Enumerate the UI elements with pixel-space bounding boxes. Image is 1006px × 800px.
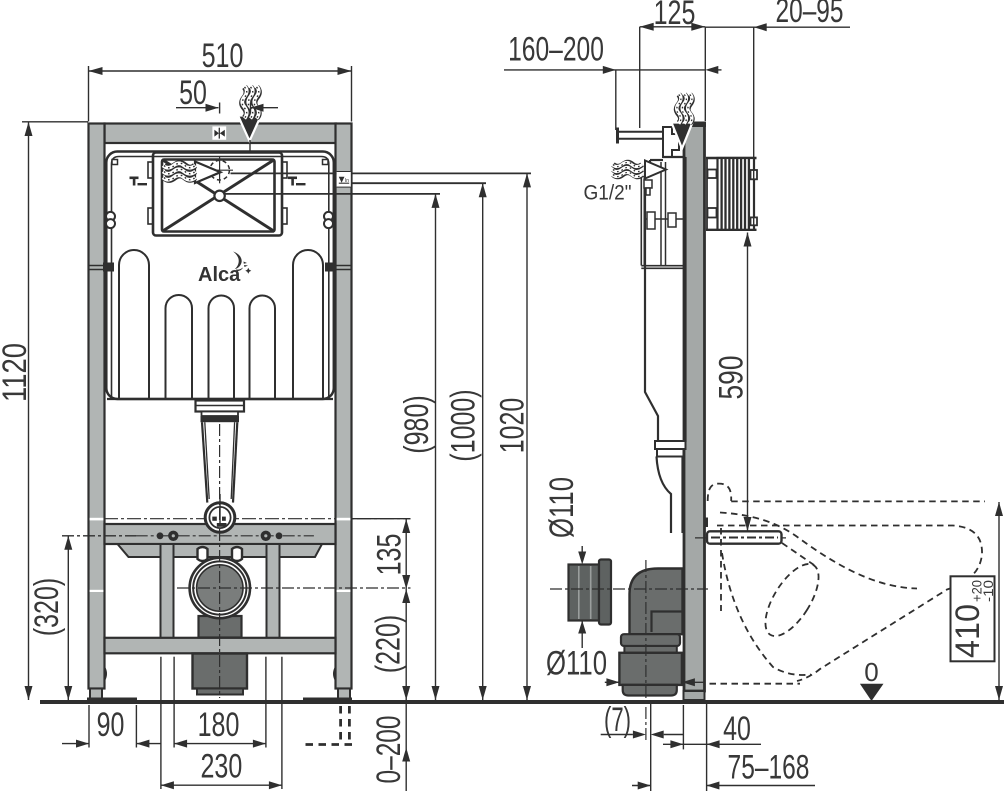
svg-text:(320): (320) [28, 578, 66, 636]
svg-text:(7): (7) [604, 701, 631, 739]
svg-text:410: 410 [949, 604, 987, 658]
svg-text:40: 40 [723, 710, 751, 748]
svg-text:230: 230 [201, 748, 243, 786]
svg-text:Ø110: Ø110 [546, 645, 607, 683]
svg-text:(220): (220) [370, 615, 408, 673]
svg-text:90: 90 [97, 706, 125, 744]
svg-text:135: 135 [371, 534, 409, 576]
svg-text:Ø110: Ø110 [543, 477, 581, 538]
svg-text:20–95: 20–95 [776, 0, 844, 30]
svg-text:0–200: 0–200 [370, 716, 408, 784]
svg-text:75–168: 75–168 [728, 749, 810, 787]
svg-text:510: 510 [202, 37, 244, 75]
svg-text:180: 180 [198, 706, 240, 744]
svg-text:G1/2": G1/2" [584, 182, 632, 205]
svg-text:1020: 1020 [494, 398, 532, 454]
svg-text:(980): (980) [398, 395, 436, 453]
svg-text:Alca: Alca [198, 264, 241, 286]
svg-text:-10: -10 [981, 580, 996, 602]
svg-text:(1000): (1000) [445, 389, 483, 461]
svg-text:160–200: 160–200 [508, 31, 604, 69]
svg-text:590: 590 [713, 356, 751, 400]
svg-text:0: 0 [864, 657, 878, 687]
svg-text:50: 50 [179, 74, 207, 112]
